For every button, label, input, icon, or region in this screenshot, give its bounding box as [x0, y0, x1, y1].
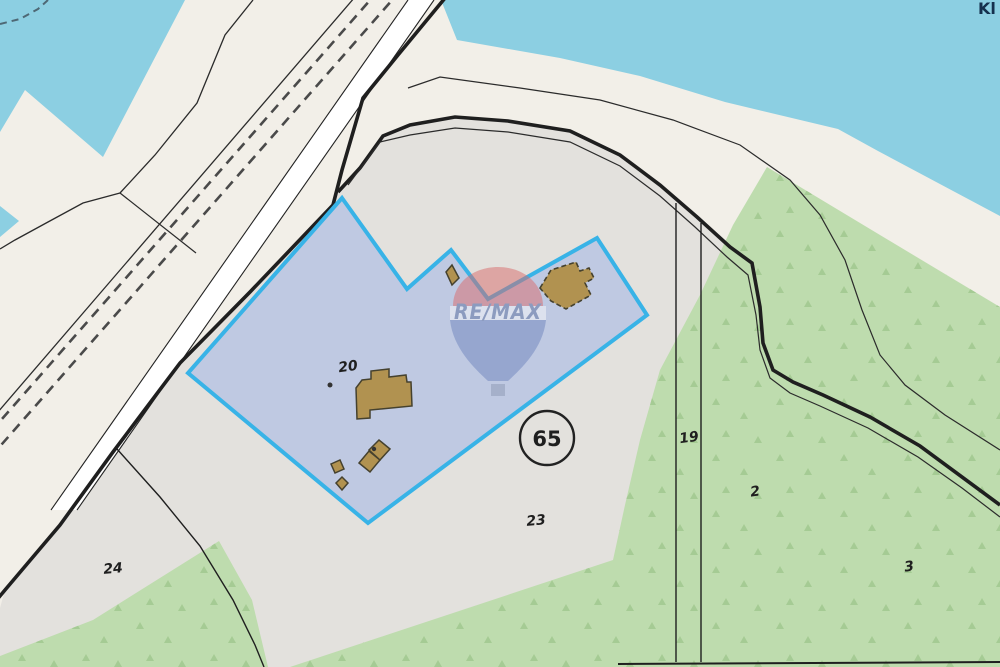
point-marker-near-20: [328, 383, 333, 388]
map-canvas[interactable]: RE/MAX 65 20 24 23 19 2 3 Kl: [0, 0, 1000, 667]
place-name-corner: Kl: [978, 0, 996, 18]
balloon-basket: [491, 384, 505, 396]
watermark-text: RE/MAX: [454, 300, 543, 324]
label-parcel-20: 20: [337, 358, 359, 377]
label-parcel-24: 24: [103, 560, 124, 578]
label-parcel-19: 19: [678, 429, 700, 448]
label-parcel-23: 23: [526, 512, 547, 530]
point-marker-near-sheds: [372, 447, 376, 451]
svg-text:65: 65: [532, 427, 561, 451]
cadastral-map[interactable]: RE/MAX 65 20 24 23 19 2 3 Kl: [0, 0, 1000, 667]
